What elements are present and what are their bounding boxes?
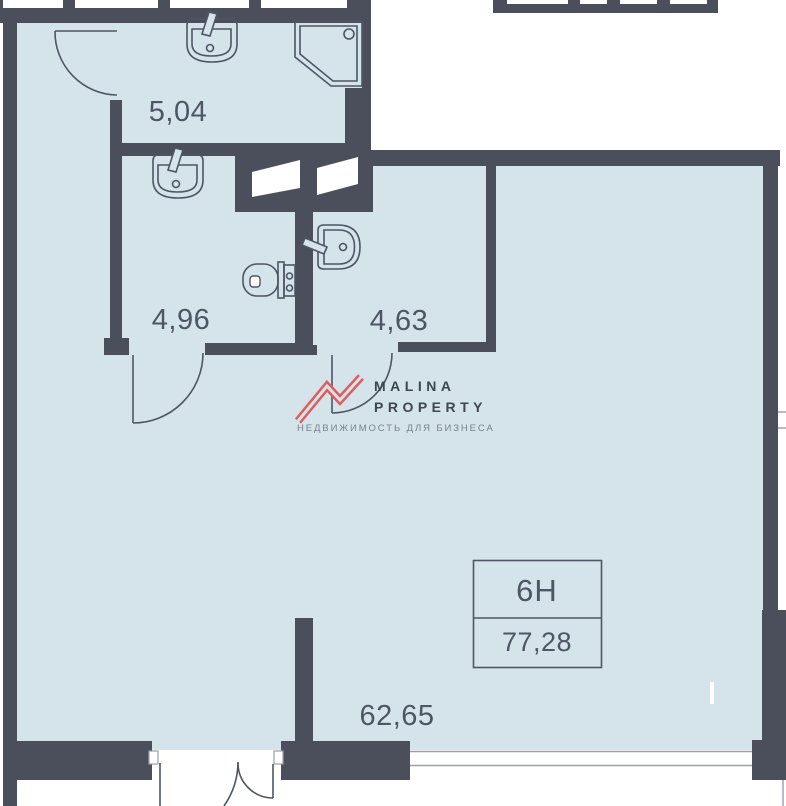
unit-total-area: 77,28 — [502, 627, 572, 657]
floor-plan: 6Н 77,28 5,04 4,96 4,63 62,65 MALINA PRO… — [0, 0, 786, 806]
floor-tick — [710, 682, 714, 704]
area-label-right-bathroom: 4,63 — [370, 305, 428, 337]
unit-number: 6Н — [516, 573, 558, 608]
area-label-top-bathroom: 5,04 — [149, 96, 207, 128]
cropped-wall-fragment — [493, 0, 718, 13]
area-label-left-bathroom: 4,96 — [152, 304, 210, 336]
floor-plan-page: 6Н 77,28 5,04 4,96 4,63 62,65 MALINA PRO… — [0, 0, 786, 806]
area-label-main-room: 62,65 — [359, 700, 434, 732]
brand-tagline: НЕДВИЖИМОСТЬ ДЛЯ БИЗНЕСА — [297, 423, 495, 434]
brand-name-line2: PROPERTY — [374, 399, 487, 415]
brand-name-line1: MALINA — [374, 378, 455, 394]
